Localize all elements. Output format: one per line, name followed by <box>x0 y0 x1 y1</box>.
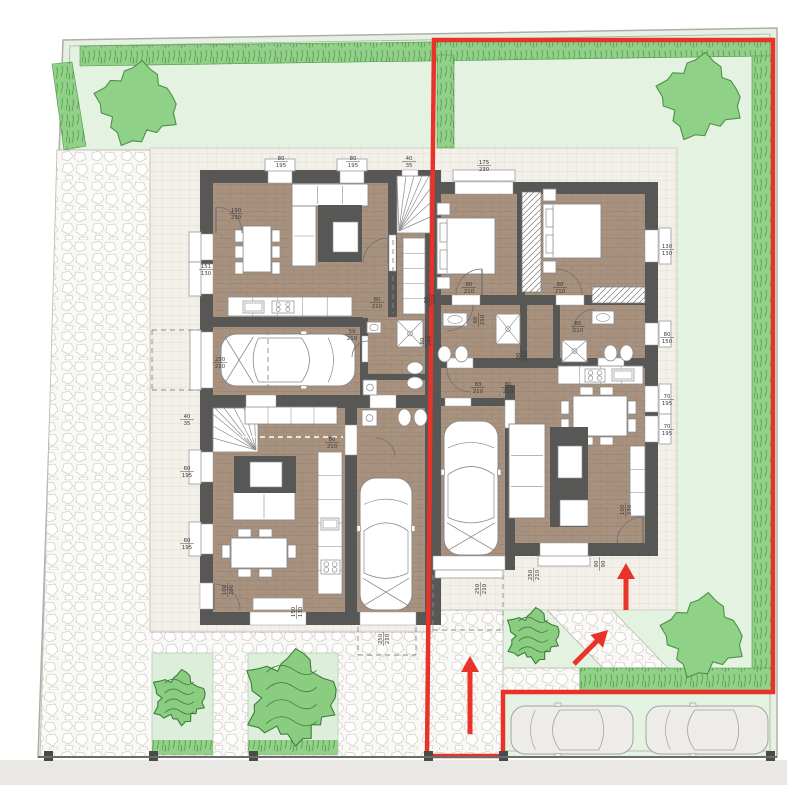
toilet-icon <box>414 409 427 426</box>
dimension-value: 250 <box>378 633 384 644</box>
dimension-value: 210 <box>215 364 226 370</box>
dimension-value: 250 <box>528 569 534 580</box>
window-opening <box>433 556 505 570</box>
stove-icon <box>272 301 294 313</box>
dimension-label: 190230 <box>229 208 243 221</box>
dimension-value: 210 <box>347 336 358 342</box>
dimension-label: 250210 <box>528 568 541 582</box>
pillow <box>440 223 447 242</box>
window-sill <box>190 330 201 390</box>
dimension-value: 130 <box>662 251 673 257</box>
counter-unit <box>403 238 425 314</box>
hedge <box>752 56 773 688</box>
dimension-value: 100 <box>222 584 228 595</box>
dimension-value: 83 <box>475 382 482 388</box>
wall <box>553 305 560 362</box>
dimension-value: 230 <box>231 215 242 221</box>
dimension-label: 250210 <box>213 357 227 370</box>
dimension-value: 210 <box>573 328 584 334</box>
toilet-icon <box>438 346 451 362</box>
window-opening <box>360 612 416 625</box>
window-opening <box>645 416 658 442</box>
dimension-label: 150130 <box>291 605 304 619</box>
dimension-value: 80 <box>466 282 473 288</box>
nightstand <box>437 203 450 215</box>
dimension-value: 210 <box>555 289 566 295</box>
dimension-value: 210 <box>482 583 488 594</box>
chair <box>222 545 230 558</box>
chair <box>580 387 593 395</box>
chair <box>272 246 280 258</box>
window-opening <box>246 395 276 408</box>
sofa <box>292 184 368 206</box>
dimension-value: 150 <box>662 339 673 345</box>
dimension-value: 59 <box>349 329 356 335</box>
tv-unit <box>250 462 282 487</box>
wardrobe-hatch <box>592 287 645 303</box>
dimension-value: 60 <box>184 538 191 544</box>
chair <box>235 246 243 258</box>
street-pavement <box>0 760 787 785</box>
dimension-label: 100206 <box>222 583 235 597</box>
dimension-value: 60 <box>184 466 191 472</box>
wardrobe-hatch <box>522 192 541 292</box>
site-plan-drawing: 8019580195403517523019023015113025021040… <box>0 0 787 785</box>
stove-icon <box>321 560 340 574</box>
parked-car <box>646 703 768 757</box>
sofa <box>509 424 545 518</box>
car-body <box>511 706 633 754</box>
dimension-value: 250 <box>215 357 226 363</box>
dimension-value: 210 <box>385 633 391 644</box>
dimension-value: 80 <box>664 332 671 338</box>
dimension-value: 210 <box>473 389 484 395</box>
dimension-value: 35 <box>184 421 191 427</box>
side-mirror <box>498 469 502 475</box>
chair <box>561 401 569 414</box>
dimension-value: 210 <box>523 350 529 361</box>
garage-car <box>357 478 415 610</box>
dimension-value: 80 <box>424 296 430 303</box>
dimension-value: 195 <box>348 163 358 169</box>
washing-machine-icon <box>363 380 377 395</box>
dimension-value: 210 <box>327 444 338 450</box>
dimension-value: 40 <box>184 414 191 420</box>
sink-basin <box>614 371 632 379</box>
washing-machine-icon <box>362 410 377 426</box>
chair <box>238 529 251 537</box>
sink-basin <box>245 303 262 311</box>
dimension-value: 130 <box>662 244 673 250</box>
tv-unit <box>558 446 582 478</box>
dimension-label: 100230 <box>620 503 633 517</box>
pillow <box>546 235 553 253</box>
dimension-value: 240 <box>427 335 433 346</box>
window-sill <box>189 232 201 262</box>
window-opening <box>645 386 658 412</box>
window-opening <box>370 395 396 408</box>
window-sill <box>189 262 201 296</box>
car-body <box>646 706 768 754</box>
dimension-value: 80 <box>575 321 582 327</box>
chair <box>259 529 272 537</box>
window-sill <box>435 570 503 578</box>
chair <box>272 262 280 274</box>
dimension-value: 230 <box>479 167 490 173</box>
window-opening <box>362 336 368 362</box>
wall <box>200 395 433 408</box>
stone-path <box>503 668 580 692</box>
chair <box>272 230 280 242</box>
site-plan-image: 8019580195403517523019023015113025021040… <box>0 0 787 785</box>
dimension-label: 130130 <box>660 244 674 257</box>
dimension-value: 80 <box>278 156 285 162</box>
dimension-value: 210 <box>372 304 383 310</box>
dimension-value: 60 <box>473 316 479 323</box>
car-body <box>444 421 498 555</box>
stove-icon <box>585 369 605 382</box>
dimension-value: 70 <box>664 394 671 400</box>
nightstand <box>543 261 556 273</box>
window-opening <box>200 234 213 260</box>
dimension-value: 100 <box>620 504 626 515</box>
toilet-icon <box>407 362 423 374</box>
dimension-label: 175230 <box>477 160 491 173</box>
window-opening <box>645 323 658 345</box>
window-opening <box>445 398 471 406</box>
chair <box>235 262 243 274</box>
hedge <box>437 55 454 148</box>
dimension-value: 250 <box>475 583 481 594</box>
window-opening <box>455 182 513 194</box>
dimension-value: 210 <box>503 389 514 395</box>
window-opening <box>200 452 213 482</box>
side-mirror <box>690 703 696 707</box>
window-opening <box>200 583 213 609</box>
toilet-icon <box>455 346 468 362</box>
dining-table <box>231 538 287 568</box>
dimension-value: 150 <box>291 606 297 617</box>
bath-sink-icon <box>443 313 467 326</box>
toilet-icon <box>604 345 617 361</box>
dimension-value: 151 <box>201 264 211 270</box>
chair <box>628 419 636 432</box>
dimension-value: 80 <box>505 382 512 388</box>
dimension-value: 80 <box>420 337 426 344</box>
dimension-value: 195 <box>182 545 192 551</box>
tv-unit <box>560 500 588 526</box>
chair <box>288 545 296 558</box>
bath-sink-icon <box>592 311 614 324</box>
dimension-label: 151130 <box>199 264 213 277</box>
wall <box>213 317 363 327</box>
garage-car <box>221 331 355 389</box>
nightstand <box>437 277 450 289</box>
window-sill <box>538 556 590 566</box>
pillow <box>546 209 553 227</box>
dimension-value: 90 <box>601 560 607 567</box>
dimension-value: 210 <box>431 294 437 305</box>
dimension-label: 250210 <box>475 582 488 596</box>
car-body <box>221 334 355 386</box>
toilet-icon <box>398 409 411 426</box>
window-opening <box>340 170 364 183</box>
side-mirror <box>357 526 361 532</box>
dimension-label: 250210 <box>378 632 391 646</box>
side-mirror <box>301 331 307 335</box>
dimension-value: 130 <box>298 606 304 617</box>
toilet-icon <box>620 345 633 361</box>
window-opening <box>452 295 480 305</box>
side-mirror <box>412 526 416 532</box>
window-opening <box>200 524 213 554</box>
window-opening <box>345 425 357 455</box>
dimension-value: 195 <box>276 163 286 169</box>
dimension-value: 80 <box>350 156 357 162</box>
dimension-value: 210 <box>535 569 541 580</box>
dimension-value: 90 <box>594 560 600 567</box>
sink-basin <box>323 520 337 528</box>
dimension-value: 210 <box>464 289 475 295</box>
car-body <box>360 478 412 610</box>
window-opening <box>556 295 584 305</box>
garage-car <box>441 421 501 555</box>
grass-strip <box>152 740 213 755</box>
dimension-value: 206 <box>229 584 235 595</box>
chair <box>238 569 251 577</box>
dimension-value: 80 <box>329 437 336 443</box>
dimension-value: 70 <box>664 424 671 430</box>
dimension-value: 210 <box>480 314 486 325</box>
dimension-value: 80 <box>374 297 381 303</box>
bath-sink-icon <box>367 322 381 333</box>
side-mirror <box>441 469 445 475</box>
hedge <box>580 668 773 690</box>
dimension-value: 230 <box>627 504 633 515</box>
nightstand <box>543 189 556 201</box>
dimension-value: 90 <box>516 352 522 359</box>
dimension-value: 195 <box>662 401 672 407</box>
dimension-value: 40 <box>406 156 413 162</box>
window-opening <box>540 543 588 556</box>
dining-table <box>243 226 271 272</box>
toilet-icon <box>407 377 423 389</box>
parked-car <box>511 703 633 757</box>
dimension-value: 130 <box>201 271 212 277</box>
side-mirror <box>555 703 561 707</box>
chair <box>259 569 272 577</box>
dimension-value: 190 <box>231 208 242 214</box>
window-opening <box>268 170 292 183</box>
dimension-value: 195 <box>182 473 192 479</box>
pillow <box>440 250 447 269</box>
chair <box>600 437 613 445</box>
dimension-value: 175 <box>479 160 489 166</box>
dimension-value: 195 <box>662 431 672 437</box>
window-opening <box>389 235 396 271</box>
tv-unit <box>333 222 358 252</box>
dimension-value: 35 <box>406 163 413 169</box>
window-opening <box>645 230 658 262</box>
chair <box>628 401 636 414</box>
dimension-value: 80 <box>557 282 564 288</box>
window-opening <box>200 332 213 388</box>
chair <box>600 387 613 395</box>
side-mirror <box>301 386 307 390</box>
